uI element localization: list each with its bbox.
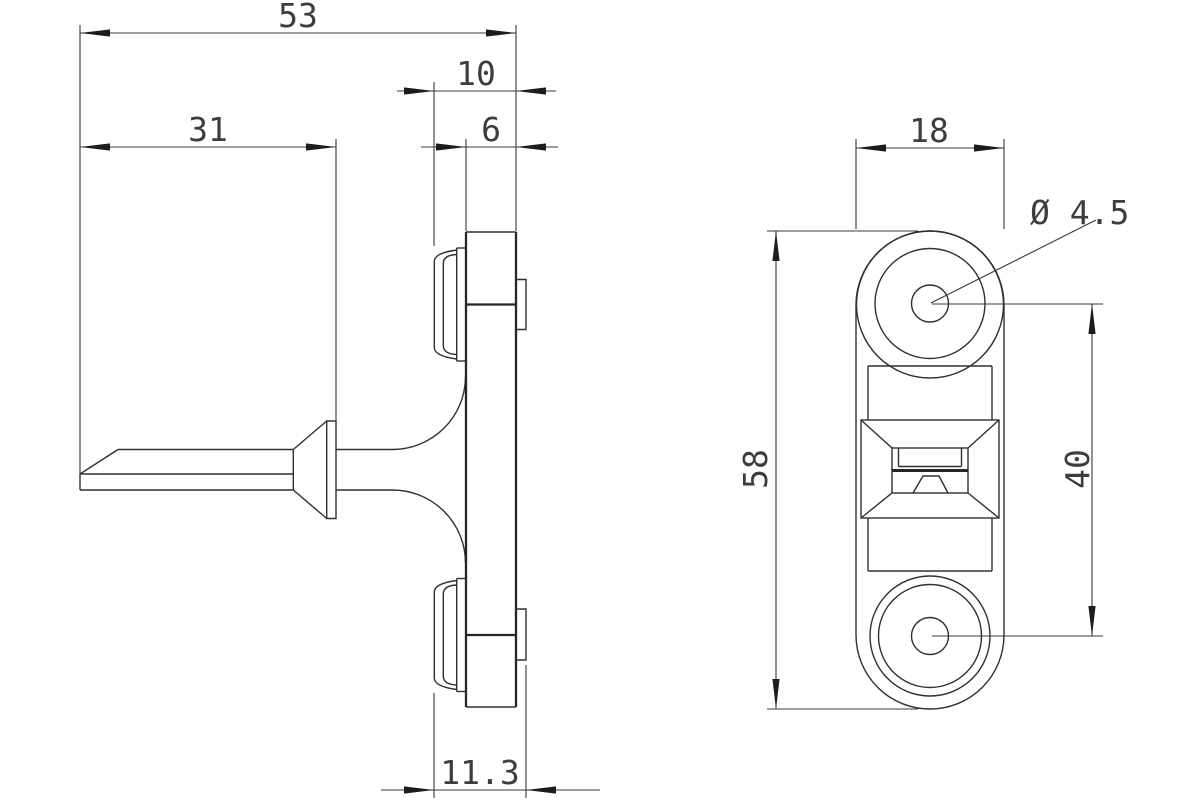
dim-hole-diameter: Ø 4.5 [931, 193, 1129, 303]
dim-plate-thickness: 6 [421, 110, 558, 231]
dim-plate-width: 18 [856, 111, 1004, 229]
bottom-catch-dome [434, 579, 466, 692]
bottom-back-boss [516, 609, 526, 660]
drawing-sheet: 53 10 31 6 [0, 0, 1200, 800]
top-back-boss [516, 280, 526, 330]
faceplate-side [466, 232, 516, 707]
dim-label-18: 18 [909, 111, 949, 150]
dim-label-58: 58 [736, 449, 775, 489]
leader-line [931, 220, 1096, 303]
dim-label-6: 6 [481, 110, 501, 149]
dim-plate-height: 58 [736, 231, 918, 709]
housing-block [868, 366, 992, 571]
top-catch-dome [434, 248, 466, 361]
pin-profile [80, 421, 336, 519]
dim-overall-stack: 11.3 [381, 665, 600, 798]
dim-overall-depth: 53 [80, 0, 516, 490]
front-view: 18 58 40 Ø 4.5 [736, 111, 1129, 709]
dim-label-11-3: 11.3 [440, 753, 519, 792]
dim-label-10: 10 [456, 54, 496, 93]
dim-pin-length: 31 [80, 110, 336, 421]
dim-label-dia-4-5: Ø 4.5 [1030, 193, 1129, 232]
dim-label-40: 40 [1058, 449, 1097, 489]
strike-recess [861, 420, 999, 518]
cad-drawing: 53 10 31 6 [0, 0, 1200, 800]
neck-funnel [336, 377, 466, 564]
side-view: 53 10 31 6 [80, 0, 600, 798]
dim-label-53: 53 [278, 0, 318, 35]
dim-label-31: 31 [188, 110, 228, 149]
dim-face-to-plate-back: 10 [397, 54, 556, 246]
